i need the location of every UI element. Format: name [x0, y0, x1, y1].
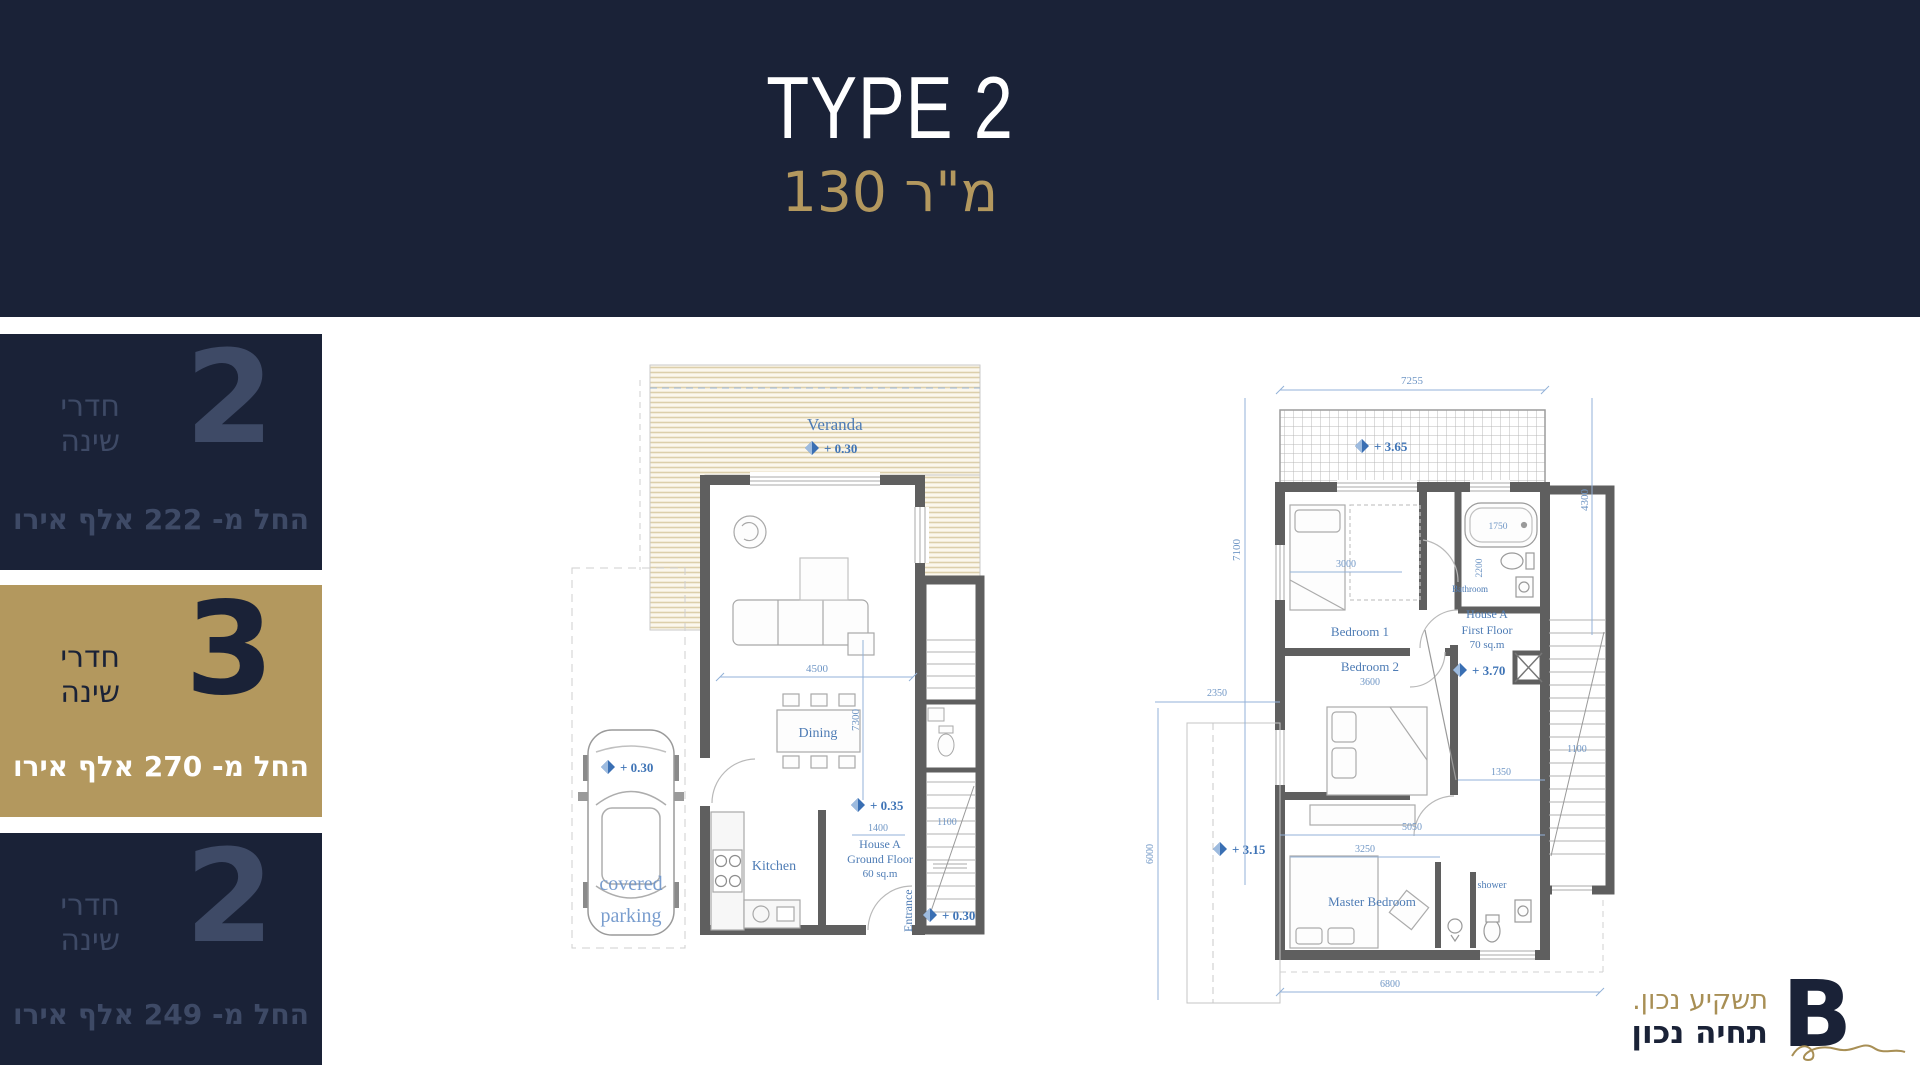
- first-floor-plan: 7255 + 3.65: [1140, 300, 1700, 1010]
- bedroom-label: חדרי שינה: [60, 641, 120, 710]
- terrace: + 3.15: [1187, 723, 1280, 1003]
- stairs-and-wc: [926, 640, 976, 920]
- price-text: החל מ- 270 אלף אירו: [0, 750, 322, 783]
- dim-1100-ff: 1100: [1567, 744, 1587, 755]
- tagline-top: תשקיע נכון.: [1631, 986, 1768, 1016]
- dim-1400: 1400: [868, 823, 888, 834]
- bedroom-label-top: חדרי: [60, 390, 120, 425]
- dim-3250: 3250: [1355, 844, 1375, 855]
- signature-flourish-icon: [1788, 1026, 1908, 1068]
- dim-3000: 3000: [1336, 559, 1356, 570]
- bedroom-label-top: חדרי: [60, 641, 120, 676]
- header-banner: TYPE 2 130 מ"ר: [0, 0, 1920, 317]
- bedroom-label-bottom: שינה: [60, 425, 120, 460]
- bedroom1-furniture: [1290, 505, 1420, 610]
- kitchen-label: Kitchen: [752, 859, 796, 874]
- bedroom-label-bottom: שינה: [60, 924, 120, 959]
- card-2-bedrooms-b: 2 חדרי שינה החל מ- 249 אלף אירו: [0, 833, 322, 1065]
- dim-5050: 5050: [1402, 822, 1422, 833]
- shower-room: [1448, 900, 1531, 942]
- area-label: 60 sq.m: [863, 868, 898, 880]
- dim-4500: 4500: [806, 663, 829, 675]
- price-text: החל מ- 222 אלף אירו: [0, 503, 322, 536]
- brand-logo: תשקיע נכון. תחיה נכון B: [1631, 974, 1892, 1064]
- card-3-bedrooms: 3 חדרי שינה החל מ- 270 אלף אירו: [0, 585, 322, 817]
- bedroom2-label: Bedroom 2: [1341, 659, 1399, 674]
- dim-3600: 3600: [1360, 677, 1380, 688]
- bedroom-count: 2: [185, 332, 274, 466]
- tagline-bottom: תחיה נכון: [1631, 1016, 1768, 1052]
- dining-label: Dining: [799, 726, 838, 741]
- balcony: + 3.65: [1280, 410, 1545, 487]
- ff-stairs: 1100: [1515, 620, 1606, 856]
- parking-level: + 0.30: [620, 760, 653, 775]
- card-2-bedrooms-a: 2 חדרי שינה החל מ- 222 אלף אירו: [0, 334, 322, 570]
- area-label: 70 sq.m: [1470, 639, 1505, 651]
- level-inner: + 3.70: [1472, 663, 1505, 678]
- dim-6000: 6000: [1145, 844, 1156, 864]
- floor-label: Ground Floor: [847, 852, 913, 866]
- veranda-label: Veranda: [807, 415, 863, 434]
- bathroom-fixtures: [1465, 503, 1537, 597]
- dim-2200: 2200: [1475, 558, 1485, 577]
- level-inner: + 0.35: [870, 798, 904, 813]
- dim-1350: 1350: [1491, 767, 1511, 778]
- bedroom2-furniture: [1310, 707, 1427, 825]
- brand-mark: B: [1782, 974, 1892, 1064]
- dim-6800: 6800: [1380, 979, 1400, 990]
- floor-label: First Floor: [1461, 623, 1512, 637]
- bathroom-label: Bathroom: [1452, 584, 1488, 594]
- shower-label: shower: [1478, 880, 1508, 891]
- brand-taglines: תשקיע נכון. תחיה נכון: [1631, 986, 1768, 1051]
- bedroom-label: חדרי שינה: [60, 390, 120, 459]
- dim-7255: 7255: [1401, 375, 1424, 387]
- page-subtitle: 130 מ"ר: [0, 160, 1780, 224]
- veranda-level: + 0.30: [824, 441, 857, 456]
- master-label: Master Bedroom: [1328, 894, 1416, 909]
- price-text: החל מ- 249 אלף אירו: [0, 998, 322, 1031]
- entrance-label: Entrance: [901, 889, 915, 932]
- page-title: TYPE 2: [178, 62, 1602, 154]
- slide: TYPE 2 130 מ"ר 2 חדרי שינה החל מ- 222 אל…: [0, 0, 1920, 1080]
- bedroom-label-bottom: שינה: [60, 676, 120, 711]
- bedroom-label: חדרי שינה: [60, 889, 120, 958]
- balcony-level: + 3.65: [1374, 439, 1408, 454]
- header-text-block: TYPE 2 130 מ"ר: [0, 0, 1780, 224]
- ground-floor-plan: Veranda + 0.30: [450, 300, 1020, 970]
- dim-1750: 1750: [1489, 522, 1508, 532]
- terrace-level: + 3.15: [1232, 842, 1266, 857]
- dim-4300: 4300: [1579, 489, 1591, 512]
- bedroom-count: 2: [185, 831, 274, 965]
- house-label: House A: [1466, 607, 1508, 621]
- living-furniture: [733, 516, 874, 655]
- level-entry: + 0.30: [942, 908, 975, 923]
- dim-7100: 7100: [1231, 539, 1243, 562]
- house-label: House A: [859, 837, 901, 851]
- dim-1100: 1100: [937, 817, 957, 828]
- dim-7300: 7300: [850, 709, 862, 732]
- parking-label: parking: [600, 905, 661, 927]
- bedroom1-label: Bedroom 1: [1331, 624, 1389, 639]
- dim-2350: 2350: [1207, 688, 1227, 699]
- bedroom-label-top: חדרי: [60, 889, 120, 924]
- bedroom-count: 3: [185, 583, 274, 717]
- ff-top-dim: 7255: [1276, 375, 1549, 394]
- covered-label: covered: [599, 873, 662, 895]
- ff-room-tags: House A First Floor 70 sq.m + 3.70: [1453, 607, 1513, 678]
